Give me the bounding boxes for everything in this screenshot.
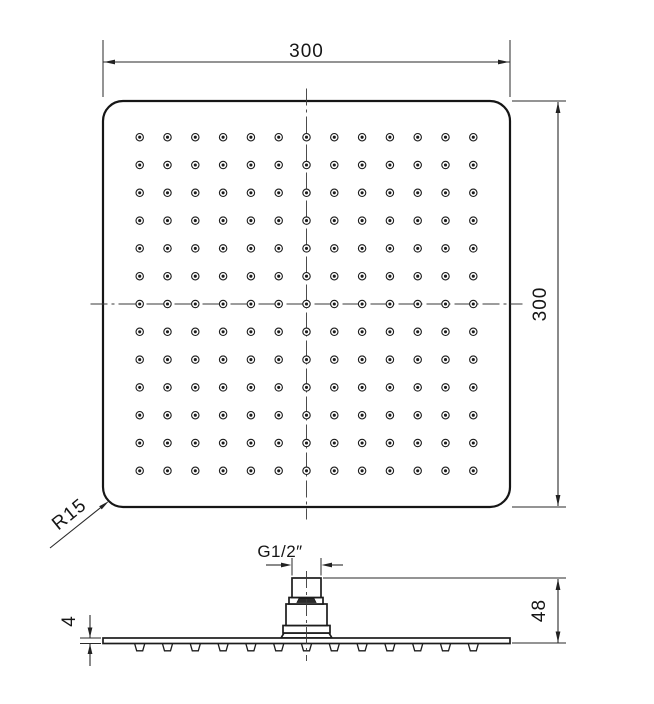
arrowhead-right: [322, 563, 333, 568]
nozzle-hole: [388, 469, 391, 472]
plate-thickness-dimension: 4: [59, 615, 101, 666]
nozzle-hole: [444, 163, 447, 166]
nozzle-hole: [277, 469, 280, 472]
nozzle-hole: [138, 275, 141, 278]
nozzle-hole: [277, 247, 280, 250]
nozzle-hole: [361, 275, 364, 278]
nozzle-tooth: [357, 644, 367, 651]
nozzle-hole: [305, 414, 308, 417]
nozzle-hole: [416, 219, 419, 222]
nozzle-hole: [333, 414, 336, 417]
nozzle-hole: [444, 247, 447, 250]
nozzle-hole: [472, 330, 475, 333]
nozzle-hole: [333, 358, 336, 361]
nozzle-hole: [361, 358, 364, 361]
nozzle-hole: [333, 191, 336, 194]
nozzle-hole: [138, 136, 141, 139]
nozzle-hole: [361, 469, 364, 472]
nozzle-hole: [472, 191, 475, 194]
nozzle-hole: [166, 302, 169, 305]
nozzle-hole: [222, 441, 225, 444]
nozzle-hole: [249, 136, 252, 139]
nozzle-hole: [333, 163, 336, 166]
nozzle-hole: [166, 441, 169, 444]
nozzle-hole: [305, 441, 308, 444]
nozzle-hole: [194, 275, 197, 278]
nozzle-hole: [444, 330, 447, 333]
nozzle-hole: [444, 275, 447, 278]
nozzle-tooth: [329, 644, 339, 651]
arrowhead-top: [556, 102, 561, 113]
nozzle-hole: [416, 358, 419, 361]
arrowhead-left: [104, 60, 115, 65]
nozzle-hole: [277, 441, 280, 444]
nozzle-hole: [361, 441, 364, 444]
nozzle-hole: [277, 414, 280, 417]
nozzle-hole: [166, 275, 169, 278]
nozzle-hole: [388, 247, 391, 250]
nozzle-hole: [472, 414, 475, 417]
nozzle-hole: [194, 302, 197, 305]
nozzle-hole: [277, 386, 280, 389]
nozzle-hole: [166, 191, 169, 194]
height-dimension: 48: [323, 578, 566, 643]
nozzle-tooth: [468, 644, 478, 651]
height-dim-text: 48: [529, 599, 550, 622]
nozzle-tooth: [413, 644, 423, 651]
nozzle-hole: [166, 414, 169, 417]
nozzle-hole: [472, 469, 475, 472]
nozzle-hole: [222, 275, 225, 278]
nozzle-hole: [277, 191, 280, 194]
nozzle-hole: [277, 136, 280, 139]
technical-drawing-sheet: 300 300 R15: [0, 0, 654, 704]
nozzle-hole: [222, 386, 225, 389]
nozzle-hole: [444, 441, 447, 444]
nozzle-hole: [416, 414, 419, 417]
nozzle-hole: [249, 191, 252, 194]
nozzle-hole: [388, 275, 391, 278]
nozzle-hole: [388, 441, 391, 444]
nozzle-hole: [138, 386, 141, 389]
nozzle-hole: [194, 330, 197, 333]
nozzle-hole: [444, 302, 447, 305]
nozzle-hole: [194, 441, 197, 444]
nozzle-hole: [138, 441, 141, 444]
nozzle-hole: [138, 247, 141, 250]
nozzle-hole: [138, 302, 141, 305]
nozzle-hole: [249, 219, 252, 222]
nozzle-hole: [388, 386, 391, 389]
nozzle-hole: [138, 163, 141, 166]
nozzle-hole: [416, 247, 419, 250]
nozzle-hole: [361, 302, 364, 305]
nozzle-hole: [416, 275, 419, 278]
nozzle-hole: [194, 414, 197, 417]
nozzle-hole: [138, 330, 141, 333]
top-width-dimension: 300: [103, 40, 510, 97]
nozzle-hole: [305, 191, 308, 194]
nozzle-hole: [333, 247, 336, 250]
nozzle-hole: [249, 469, 252, 472]
nozzle-hole: [416, 163, 419, 166]
nozzle-hole: [222, 302, 225, 305]
nozzle-hole: [333, 330, 336, 333]
nozzle-hole: [416, 191, 419, 194]
nozzle-hole: [166, 136, 169, 139]
corner-radius-callout: R15: [48, 495, 109, 548]
nozzle-hole: [361, 136, 364, 139]
nozzle-hole: [388, 358, 391, 361]
plate-thickness-text: 4: [59, 615, 80, 627]
nozzle-hole: [333, 386, 336, 389]
nozzle-hole: [222, 414, 225, 417]
nozzle-hole: [166, 330, 169, 333]
nozzle-hole: [249, 358, 252, 361]
side-dim-text: 300: [530, 287, 551, 322]
nozzle-tooth: [246, 644, 256, 651]
nozzle-hole: [277, 219, 280, 222]
nozzle-tooth: [441, 644, 451, 651]
nozzle-hole: [388, 219, 391, 222]
nozzle-hole: [444, 386, 447, 389]
nozzle-hole: [472, 302, 475, 305]
nozzle-hole: [249, 275, 252, 278]
nozzle-hole: [166, 358, 169, 361]
nozzle-hole: [361, 163, 364, 166]
nozzle-hole: [194, 469, 197, 472]
nozzle-hole: [222, 136, 225, 139]
arrowhead-bottom: [556, 495, 561, 506]
nozzle-hole: [361, 247, 364, 250]
nozzle-hole: [194, 163, 197, 166]
nozzle-hole: [305, 386, 308, 389]
nozzle-hole: [166, 219, 169, 222]
nozzle-tooth: [135, 644, 145, 651]
nozzle-hole: [194, 358, 197, 361]
nozzle-hole: [249, 163, 252, 166]
nozzle-hole: [194, 247, 197, 250]
nozzle-hole: [333, 136, 336, 139]
nozzle-tooth: [385, 644, 395, 651]
nozzle-hole: [333, 302, 336, 305]
nozzle-hole: [472, 163, 475, 166]
nozzle-hole: [222, 163, 225, 166]
nozzle-hole: [138, 191, 141, 194]
nozzle-hole: [305, 163, 308, 166]
thread-label-text: G1/2″: [257, 542, 302, 561]
nozzle-hole: [249, 414, 252, 417]
nozzle-hole: [138, 219, 141, 222]
nozzle-hole: [138, 414, 141, 417]
shower-head-drawing: 300 300 R15: [0, 0, 654, 704]
nozzle-hole: [166, 163, 169, 166]
nozzle-hole: [333, 275, 336, 278]
nozzle-hole: [444, 191, 447, 194]
top-view: [91, 89, 523, 520]
nozzle-hole: [277, 330, 280, 333]
nozzle-hole: [249, 302, 252, 305]
nozzle-hole: [416, 469, 419, 472]
nozzle-hole: [472, 247, 475, 250]
nozzle-hole: [222, 191, 225, 194]
nozzle-hole: [249, 441, 252, 444]
nozzle-hole: [305, 302, 308, 305]
side-view: [103, 571, 510, 661]
nozzle-hole: [444, 358, 447, 361]
nozzle-hole: [277, 275, 280, 278]
nozzle-hole: [305, 358, 308, 361]
nozzle-hole: [388, 136, 391, 139]
nozzle-hole: [222, 358, 225, 361]
nozzle-hole: [305, 247, 308, 250]
nozzle-hole: [361, 414, 364, 417]
nozzle-hole: [305, 330, 308, 333]
nozzle-hole: [361, 191, 364, 194]
nozzle-hole: [472, 386, 475, 389]
nozzle-hole: [361, 386, 364, 389]
nozzle-hole: [361, 219, 364, 222]
arrowhead-up: [88, 644, 93, 654]
nozzle-hole: [305, 219, 308, 222]
nozzle-hole: [388, 163, 391, 166]
nozzle-hole: [222, 247, 225, 250]
nozzle-hole: [194, 219, 197, 222]
nozzle-hole: [277, 302, 280, 305]
nozzle-hole: [416, 386, 419, 389]
nozzle-hole: [361, 330, 364, 333]
nozzle-hole: [166, 386, 169, 389]
nozzle-tooth: [274, 644, 284, 651]
nozzle-hole: [472, 358, 475, 361]
nozzle-hole: [138, 469, 141, 472]
arrowhead-right: [498, 60, 509, 65]
nozzle-hole: [388, 414, 391, 417]
arrowhead-bottom: [556, 632, 561, 643]
nozzle-hole: [277, 163, 280, 166]
nozzle-hole: [333, 219, 336, 222]
arrowhead-down: [88, 628, 93, 638]
nozzle-hole: [416, 441, 419, 444]
nozzle-hole: [249, 386, 252, 389]
nozzle-hole: [416, 302, 419, 305]
thread-dimension: G1/2″: [257, 542, 343, 576]
nozzle-hole: [444, 414, 447, 417]
nozzle-hole: [472, 219, 475, 222]
nozzle-tooth: [163, 644, 173, 651]
nozzle-hole: [222, 469, 225, 472]
nozzle-hole: [388, 191, 391, 194]
nozzle-hole: [416, 136, 419, 139]
nozzle-tooth: [190, 644, 200, 651]
nozzle-hole: [444, 219, 447, 222]
nozzle-hole: [416, 330, 419, 333]
nozzle-hole: [388, 302, 391, 305]
arrowhead-top: [556, 579, 561, 590]
nozzle-hole: [138, 358, 141, 361]
nozzle-hole: [305, 469, 308, 472]
nozzle-tooth: [218, 644, 228, 651]
corner-radius-text: R15: [48, 495, 91, 535]
nozzle-hole: [444, 136, 447, 139]
nozzle-hole: [388, 330, 391, 333]
arrowhead-left: [281, 563, 292, 568]
nozzle-hole: [444, 469, 447, 472]
nozzle-hole: [277, 358, 280, 361]
nozzle-hole: [194, 136, 197, 139]
nozzle-hole: [472, 136, 475, 139]
nozzle-hole: [249, 247, 252, 250]
nozzle-hole: [249, 330, 252, 333]
nozzle-hole: [333, 441, 336, 444]
nozzle-hole: [333, 469, 336, 472]
nozzle-hole: [194, 191, 197, 194]
nozzle-hole: [472, 441, 475, 444]
top-width-dim-text: 300: [289, 41, 324, 62]
nozzle-hole: [194, 386, 197, 389]
nozzle-hole: [166, 247, 169, 250]
nozzle-hole: [222, 330, 225, 333]
nozzle-hole: [472, 275, 475, 278]
nozzle-hole: [166, 469, 169, 472]
nozzle-hole: [305, 136, 308, 139]
nozzle-hole: [222, 219, 225, 222]
nozzle-hole: [305, 275, 308, 278]
